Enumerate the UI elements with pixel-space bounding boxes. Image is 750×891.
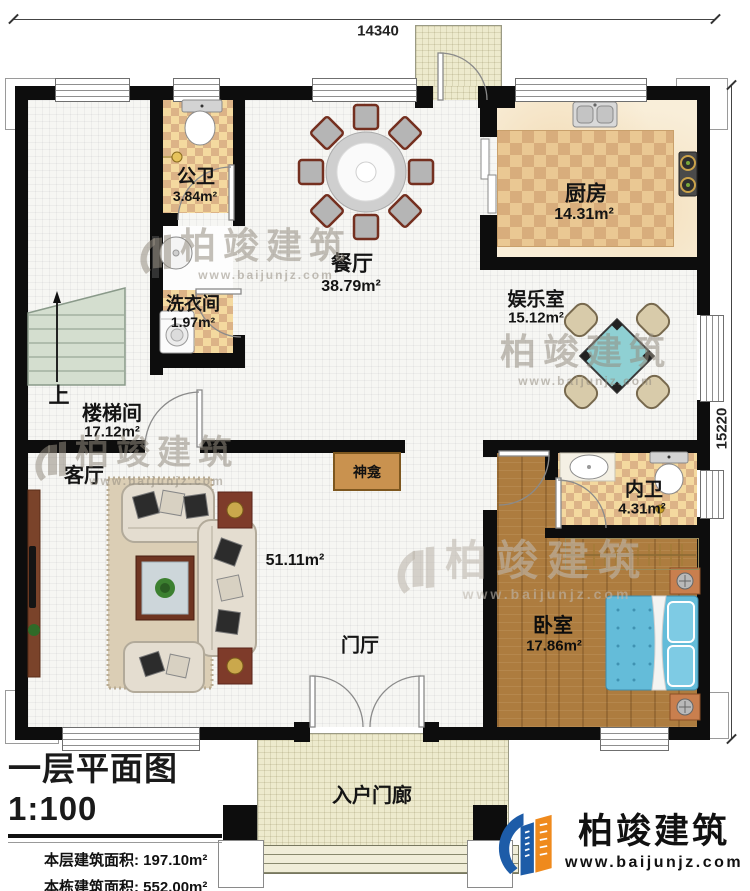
room-label-inner-bath: 内卫: [625, 481, 663, 500]
title-block: 一层平面图1:100 本层建筑面积: 197.10m² 本栋建筑面积: 552.…: [8, 742, 228, 891]
room-area-laundry: 1.97m²: [171, 315, 215, 329]
watermark: 柏竣建筑 www.baijunjz.com: [33, 436, 239, 488]
shrine: 神龛: [333, 452, 401, 491]
vanity-sink: [560, 453, 615, 481]
wall-lamp: [163, 152, 182, 162]
dining-table: [299, 105, 433, 239]
stat-building-area: 本栋建筑面积: 552.00m²: [8, 876, 228, 891]
room-area-kitchen: 14.31m²: [554, 207, 614, 223]
stairs: [28, 288, 125, 385]
kitchen-door-leaves: [481, 139, 496, 213]
watermark-logo-icon: [393, 541, 437, 601]
plan-title: 一层平面图1:100: [8, 742, 228, 828]
room-label-stairwell: 楼梯间: [82, 404, 142, 424]
room-area-entertainment: 15.12m²: [508, 311, 564, 326]
room-area-inner-bath: 4.31m²: [618, 502, 666, 517]
title-underline-thin: [8, 842, 222, 843]
watermark: 柏竣建筑 www.baijunjz.com: [393, 540, 649, 602]
toilet: [182, 100, 222, 145]
stat-floor-area: 本层建筑面积: 197.10m²: [8, 849, 228, 870]
room-area-living: 51.11m²: [266, 553, 325, 569]
room-area-bedroom: 17.86m²: [526, 639, 582, 654]
company-logo-text: 柏竣建筑 www.baijunjz.com: [565, 814, 743, 872]
room-label-laundry: 洗衣间: [166, 295, 220, 313]
tv-cabinet: [28, 490, 40, 677]
watermark-logo-icon: [138, 230, 172, 280]
watermark: 柏竣建筑 www.baijunjz.com: [500, 334, 672, 388]
company-logo: 柏竣建筑 www.baijunjz.com: [495, 806, 743, 880]
watermark: 柏竣建筑 www.baijunjz.com: [138, 228, 352, 282]
stair-up-label: 上: [49, 386, 70, 407]
room-label-foyer: 门厅: [341, 637, 379, 656]
company-logo-icon: [495, 806, 555, 880]
stove: [679, 152, 697, 196]
room-area-public-bath: 3.84m²: [173, 189, 217, 203]
title-underline: [8, 834, 222, 838]
watermark-logo-icon: [33, 437, 67, 487]
room-label-public-bath: 公卫: [177, 168, 215, 187]
coffee-table: [136, 556, 194, 620]
bed: [606, 596, 698, 690]
room-label-kitchen: 厨房: [565, 184, 607, 205]
room-label-entertainment: 娱乐室: [507, 291, 564, 310]
porch-pillar: [223, 805, 257, 840]
room-label-bedroom: 卧室: [533, 616, 573, 636]
kitchen-sink: [573, 102, 617, 127]
floor-plan-canvas: 14340 15220: [0, 0, 750, 891]
shrine-label: 神龛: [353, 462, 381, 482]
room-label-entry-porch: 入户门廊: [332, 786, 412, 806]
